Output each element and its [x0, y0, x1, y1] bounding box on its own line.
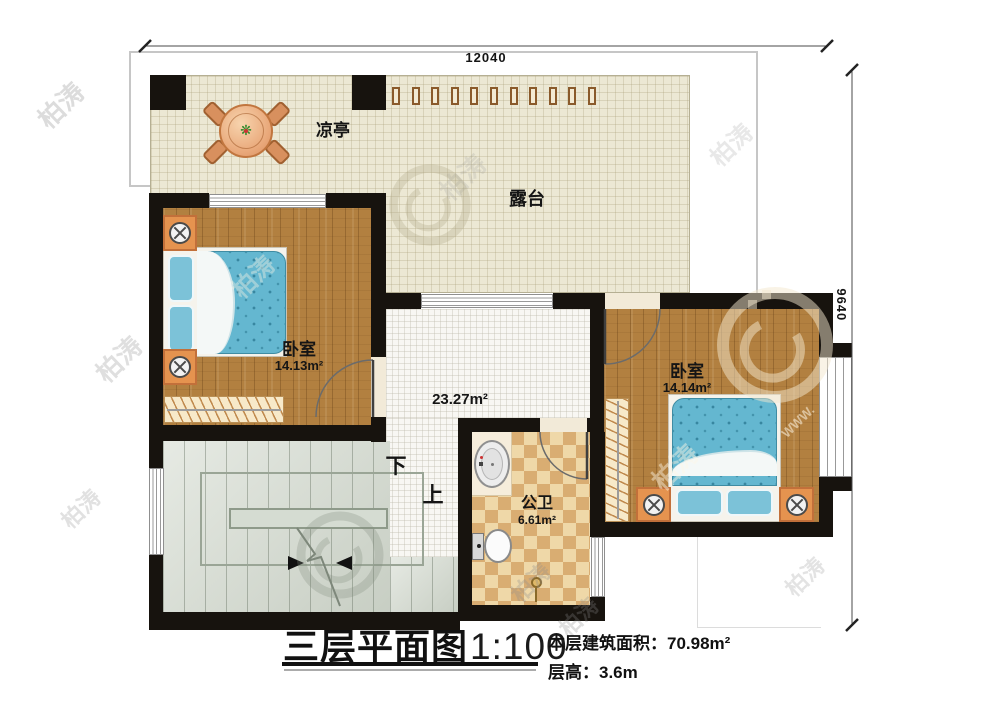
bedroom-right-area: 14.14m²: [649, 381, 725, 395]
stairs-down-label: 下: [383, 456, 409, 478]
floor-plan-canvas: ❋: [0, 0, 1000, 706]
stairs-up-label: 上: [420, 485, 446, 507]
door-arc-bathroom: [540, 432, 587, 479]
plan-overlay: [0, 0, 1000, 706]
logo-watermark: [394, 169, 467, 242]
bedroom-left-area: 14.13m²: [261, 359, 337, 373]
title-underline-thick: [282, 662, 538, 666]
bedroom-right-label: 卧室: [655, 363, 719, 381]
bathroom-area: 6.61m²: [509, 514, 565, 527]
floor-height-info: 层高：3.6m: [548, 658, 638, 683]
dimension-right-label: 9640: [834, 280, 848, 330]
title-underline-thin: [284, 669, 536, 671]
dimension-right: [846, 64, 858, 631]
door-arc-bedroom-right: [605, 309, 660, 364]
building-area-info: 本层建筑面积：70.98m²: [548, 629, 730, 654]
bathroom-label: 公卫: [511, 496, 563, 513]
bedroom-left-label: 卧室: [267, 341, 331, 359]
terrace-label: 露台: [497, 190, 557, 209]
dimension-top-label: 12040: [450, 51, 522, 65]
pavilion-label: 凉亭: [305, 122, 361, 140]
logo-watermark: [723, 290, 827, 397]
hall-area-label: 23.27m²: [420, 392, 500, 408]
